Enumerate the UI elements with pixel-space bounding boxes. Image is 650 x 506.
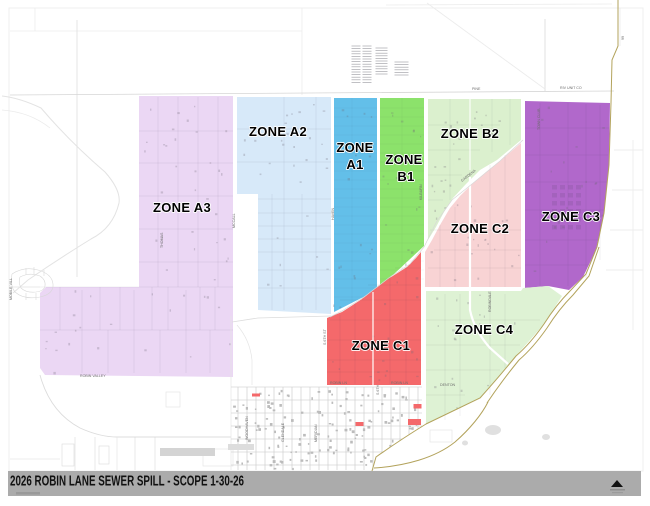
- svg-text:A1: A1: [346, 157, 363, 172]
- svg-text:B1: B1: [397, 169, 414, 184]
- svg-text:ROBIN VALLEY: ROBIN VALLEY: [80, 374, 106, 378]
- svg-text:ZONE B2: ZONE B2: [441, 126, 499, 141]
- svg-text:ROBIN LN: ROBIN LN: [391, 381, 408, 385]
- svg-text:ZONE A2: ZONE A2: [249, 124, 307, 139]
- svg-text:PINE: PINE: [472, 87, 481, 91]
- svg-text:HAVEN: HAVEN: [331, 207, 335, 220]
- svg-text:KILBURN: KILBURN: [419, 184, 423, 200]
- svg-text:DENTON: DENTON: [440, 383, 456, 387]
- svg-text:ZONE C1: ZONE C1: [352, 338, 410, 353]
- svg-text:ZONE C2: ZONE C2: [451, 221, 509, 236]
- svg-text:ZONE A3: ZONE A3: [153, 200, 211, 215]
- svg-text:S 6TH ST: S 6TH ST: [323, 328, 327, 345]
- svg-text:RIV UNIT CO: RIV UNIT CO: [560, 86, 582, 90]
- svg-text:ZONE C3: ZONE C3: [542, 209, 600, 224]
- svg-text:MCCALL: MCCALL: [232, 213, 236, 228]
- svg-text:ROBIN LN: ROBIN LN: [330, 381, 347, 385]
- svg-text:WOODHAVEN: WOODHAVEN: [245, 416, 249, 440]
- svg-text:THOMAS: THOMAS: [160, 232, 164, 248]
- svg-text:ZONE C4: ZONE C4: [455, 322, 514, 337]
- svg-text:ZONE: ZONE: [385, 152, 422, 167]
- svg-text:2026 ROBIN LANE SEWER SPILL -: 2026 ROBIN LANE SEWER SPILL - SCOPE 1-30…: [10, 473, 244, 490]
- svg-text:S 6TH: S 6TH: [376, 384, 380, 395]
- svg-text:MOBILE VILL: MOBILE VILL: [9, 278, 13, 300]
- svg-text:TOWN CLUB: TOWN CLUB: [537, 108, 541, 130]
- svg-text:99: 99: [621, 36, 625, 40]
- svg-text:ZONE: ZONE: [336, 140, 373, 155]
- svg-text:GLENDALE: GLENDALE: [281, 422, 285, 442]
- svg-text:MERIDIAN: MERIDIAN: [314, 424, 318, 442]
- svg-text:ROBINDALE: ROBINDALE: [488, 291, 492, 312]
